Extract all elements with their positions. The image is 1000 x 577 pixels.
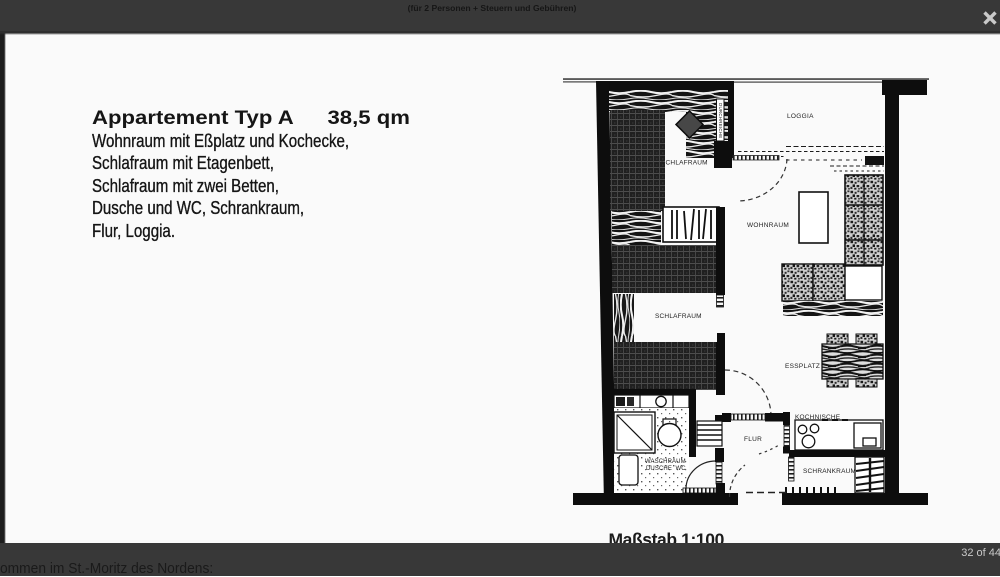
- svg-text:SCHLAFRAUM: SCHLAFRAUM: [661, 160, 708, 167]
- svg-text:LOGGIA: LOGGIA: [787, 113, 814, 120]
- svg-text:ESSPLATZ: ESSPLATZ: [785, 363, 820, 370]
- svg-text:SCHLAFRAUM: SCHLAFRAUM: [655, 313, 702, 320]
- svg-text:SCHRANKRAUM: SCHRANKRAUM: [803, 468, 856, 475]
- svg-text:WASCHRAUM: WASCHRAUM: [645, 459, 686, 465]
- svg-text:FLUR: FLUR: [744, 436, 762, 443]
- svg-text:DUSCHE WC: DUSCHE WC: [646, 466, 686, 472]
- svg-text:WOHNRAUM: WOHNRAUM: [747, 222, 789, 229]
- svg-text:DURCHREICHE: DURCHREICHE: [718, 103, 723, 138]
